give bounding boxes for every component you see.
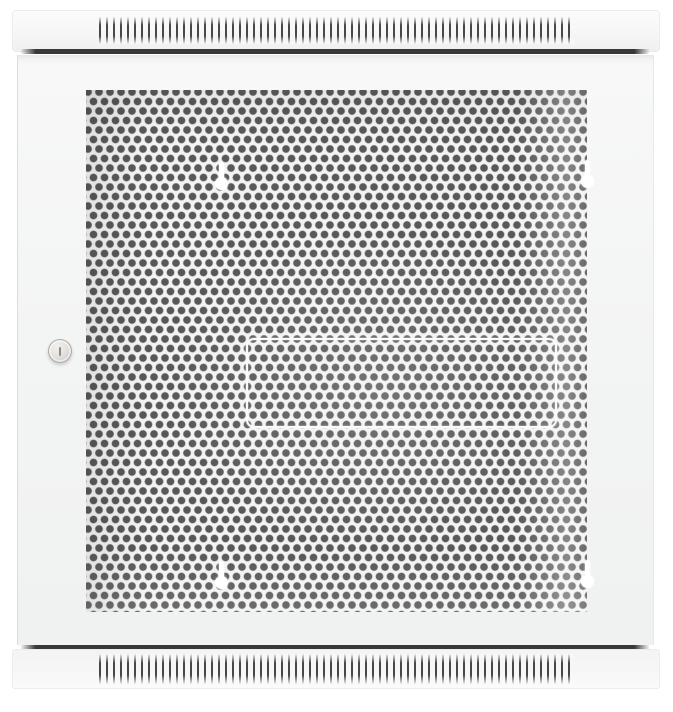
keyhole-circle [581,175,594,188]
keyhole-circle [215,576,228,589]
bottom-vent-slits [99,654,573,684]
door-lock [48,339,72,363]
mounting-keyhole-bottom-right [580,560,594,589]
lock-keyslot-icon [59,347,61,356]
cable-plate-outline [246,338,557,428]
bottom-vent-cap [12,649,660,689]
mounting-keyhole-top-left [214,162,228,191]
mounting-keyhole-top-right [580,160,594,189]
keyhole-circle [581,575,594,588]
perforated-mesh-panel [86,90,587,612]
top-vent-slits [99,17,575,44]
top-vent-cap [12,10,660,52]
mounting-keyhole-bottom-left [214,561,228,590]
cap-shadow-line-top [20,49,650,54]
front-door [17,55,654,645]
product-photo-canvas [0,0,673,712]
keyhole-circle [215,177,228,190]
